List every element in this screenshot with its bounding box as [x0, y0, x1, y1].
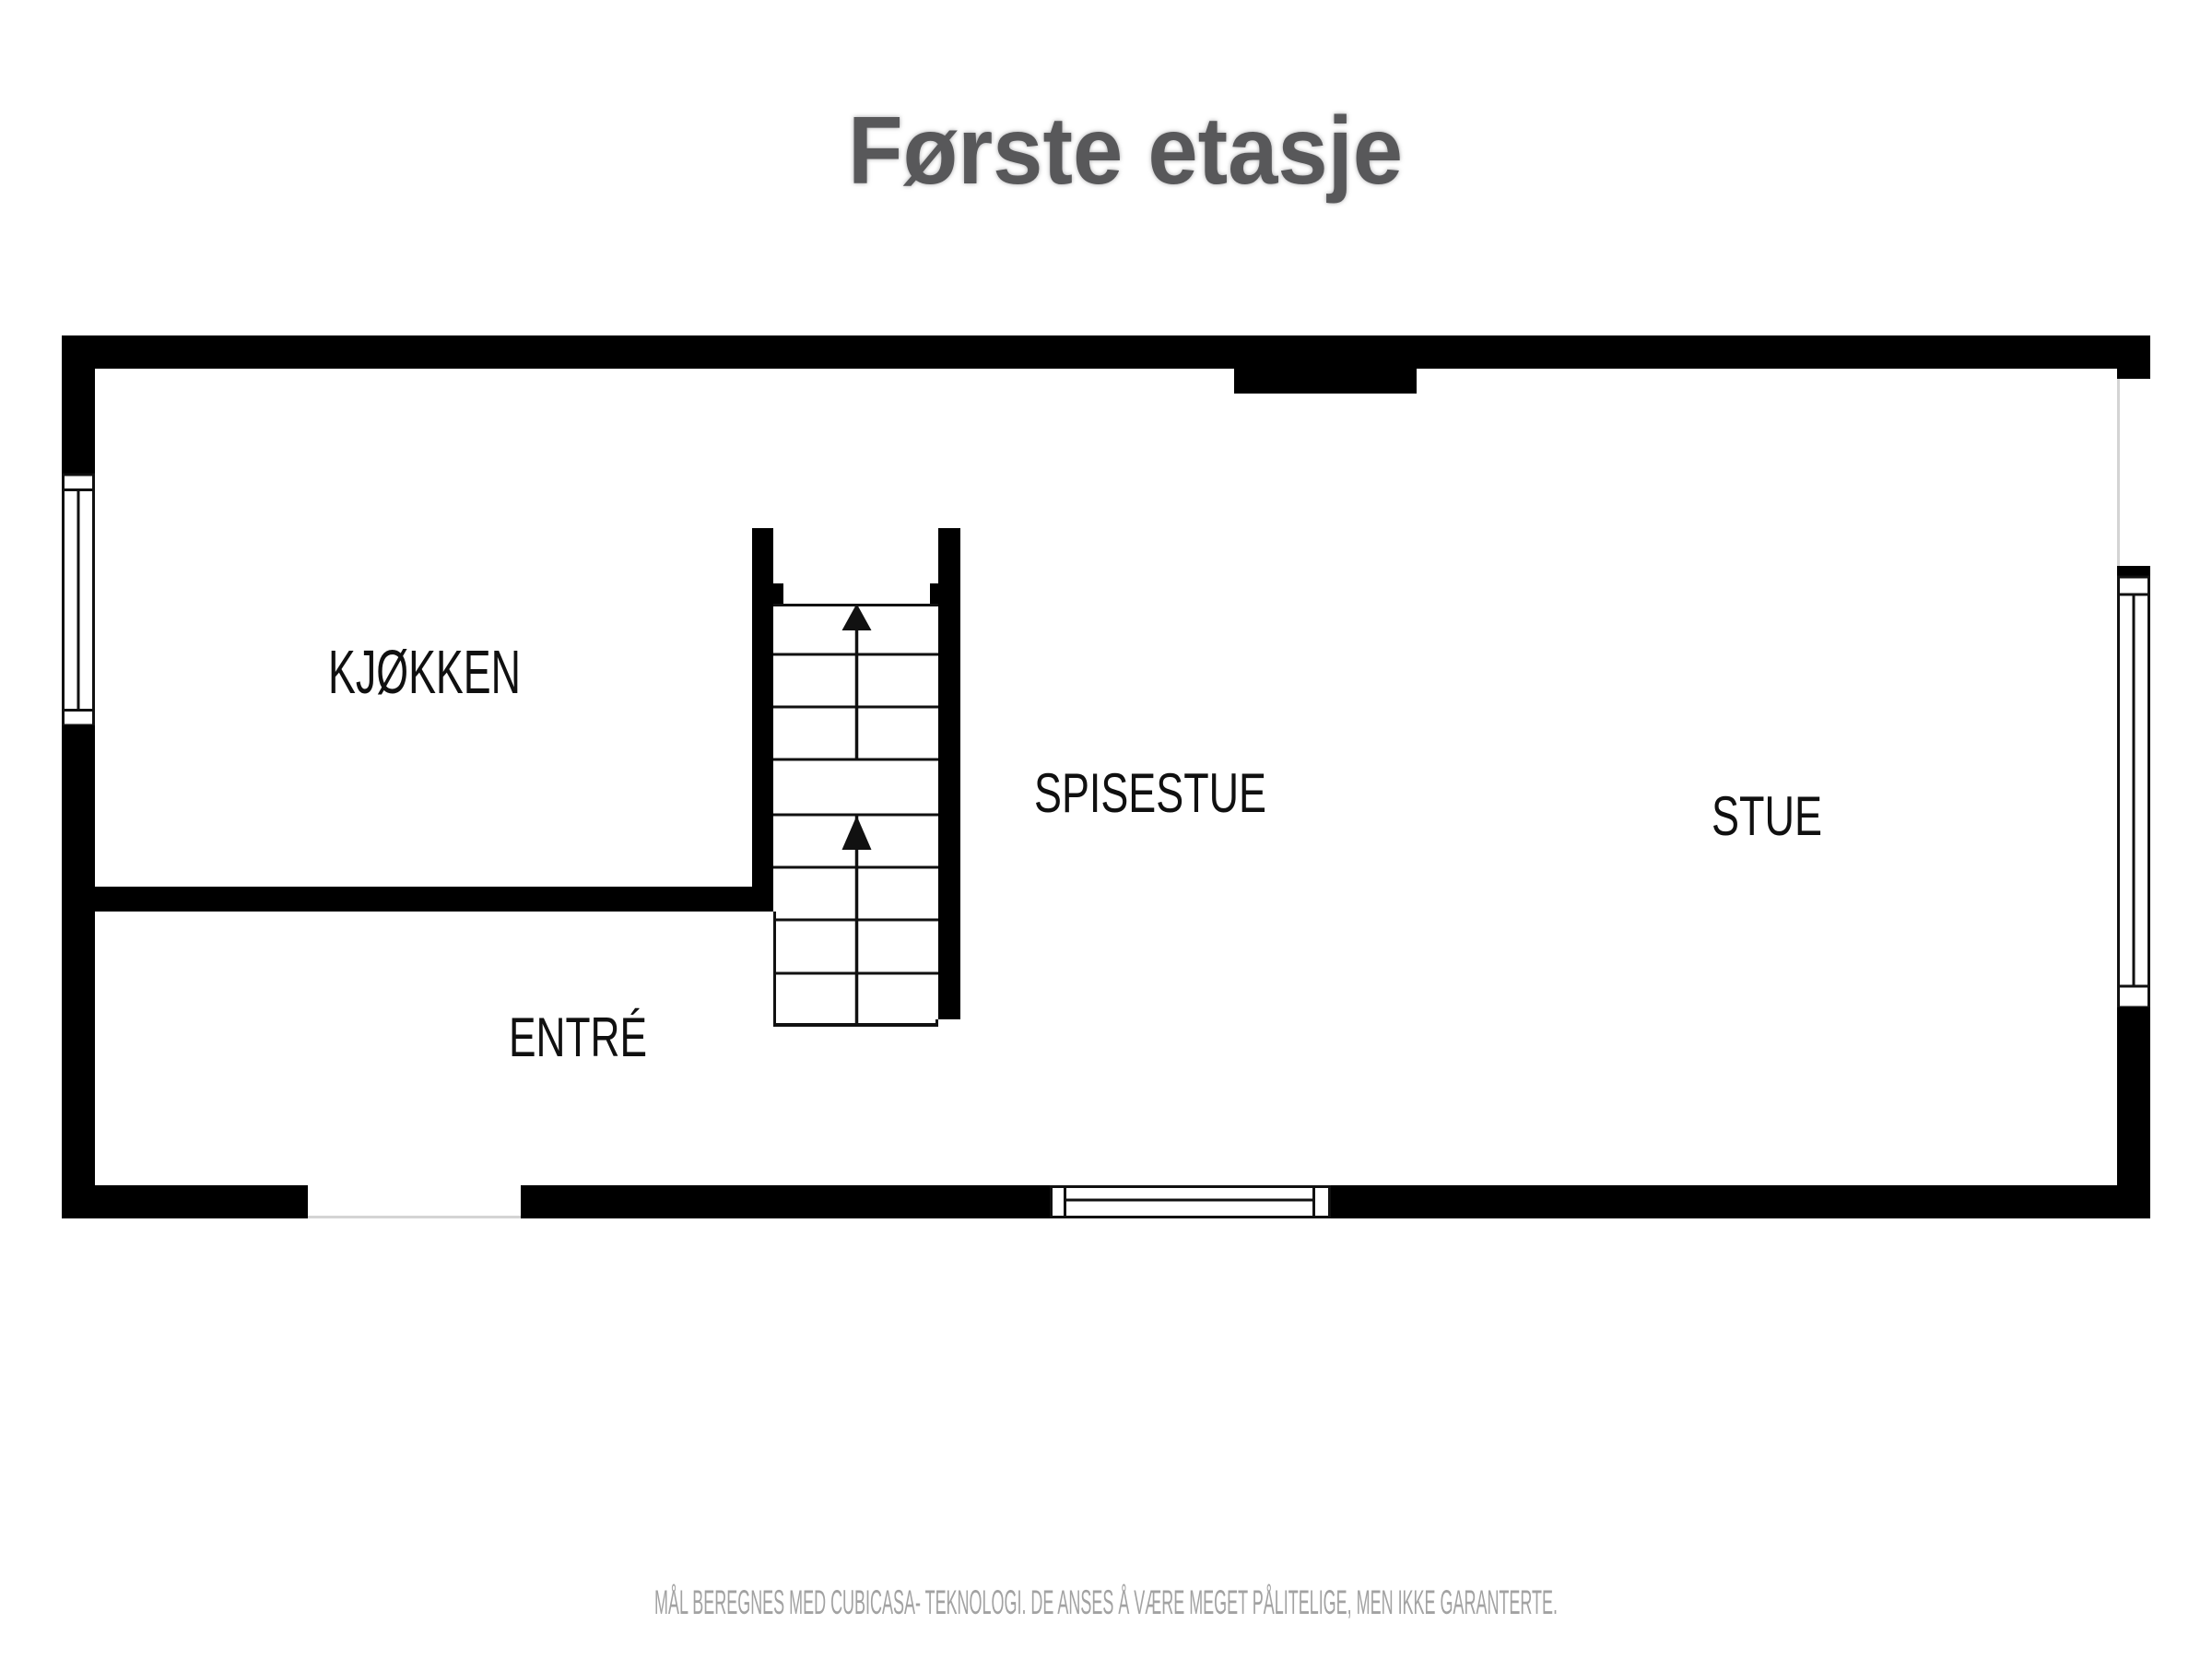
svg-text:SPISESTUE: SPISESTUE: [1034, 762, 1266, 824]
svg-text:STUE: STUE: [1712, 785, 1822, 847]
svg-text:MÅL BEREGNES MED CUBICASA- TEK: MÅL BEREGNES MED CUBICASA- TEKNOLOGI. DE…: [654, 1583, 1558, 1621]
svg-text:Første etasje: Første etasje: [848, 98, 1403, 205]
svg-text:KJØKKEN: KJØKKEN: [328, 638, 521, 707]
svg-text:ENTRÉ: ENTRÉ: [509, 1006, 647, 1068]
